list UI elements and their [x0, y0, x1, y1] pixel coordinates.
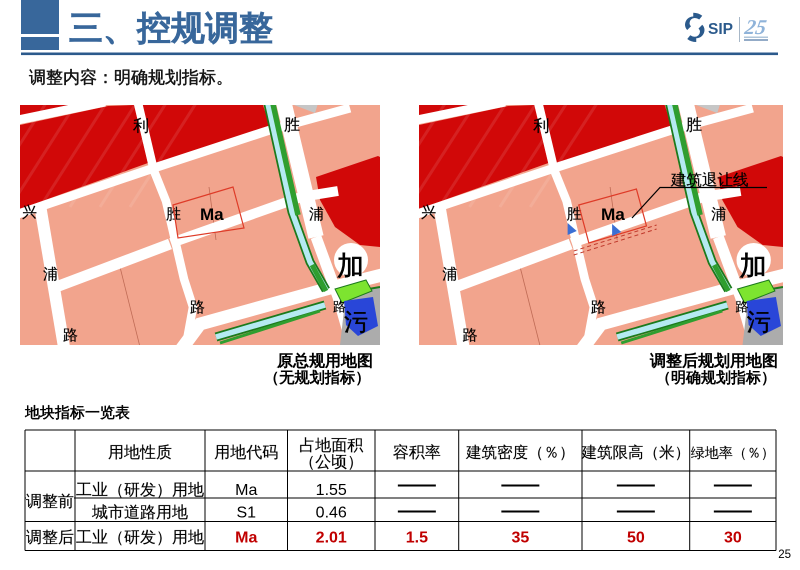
svg-text:1.5: 1.5: [406, 530, 428, 547]
svg-text:30: 30: [724, 530, 742, 547]
svg-text:35: 35: [511, 530, 529, 547]
svg-text:1.55: 1.55: [316, 482, 347, 499]
svg-text:0.46: 0.46: [316, 505, 347, 522]
svg-text:Ma: Ma: [235, 530, 257, 547]
svg-text:25: 25: [778, 549, 791, 561]
svg-text:SIP: SIP: [708, 21, 733, 38]
svg-text:S1: S1: [236, 505, 256, 522]
svg-text:2.01: 2.01: [316, 530, 347, 547]
svg-text:Ma: Ma: [235, 482, 257, 499]
svg-text:25: 25: [742, 15, 769, 39]
svg-text:50: 50: [627, 530, 645, 547]
